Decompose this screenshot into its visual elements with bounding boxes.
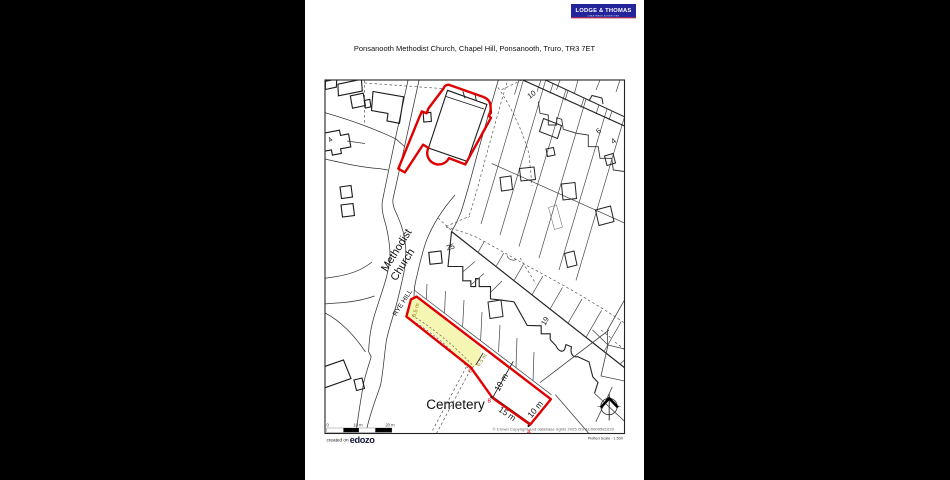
svg-text:C: C — [468, 368, 472, 374]
svg-text:Plotted Scale - 1:500: Plotted Scale - 1:500 — [588, 437, 623, 441]
svg-text:Cemetery: Cemetery — [426, 397, 485, 412]
svg-text:© Crown Copyright and database: © Crown Copyright and database rights 20… — [493, 426, 615, 431]
svg-text:20 m: 20 m — [385, 423, 395, 428]
svg-text:created on: created on — [327, 437, 350, 442]
svg-text:B: B — [487, 398, 491, 404]
svg-text:CHARTERED SURVEYORS: CHARTERED SURVEYORS — [588, 15, 620, 18]
svg-text:LODGE & THOMAS: LODGE & THOMAS — [576, 8, 632, 14]
svg-text:10 m: 10 m — [353, 423, 363, 428]
svg-text:edozo: edozo — [350, 435, 376, 445]
svg-text:Ponsanooth Methodist Church, C: Ponsanooth Methodist Church, Chapel Hill… — [354, 44, 596, 53]
